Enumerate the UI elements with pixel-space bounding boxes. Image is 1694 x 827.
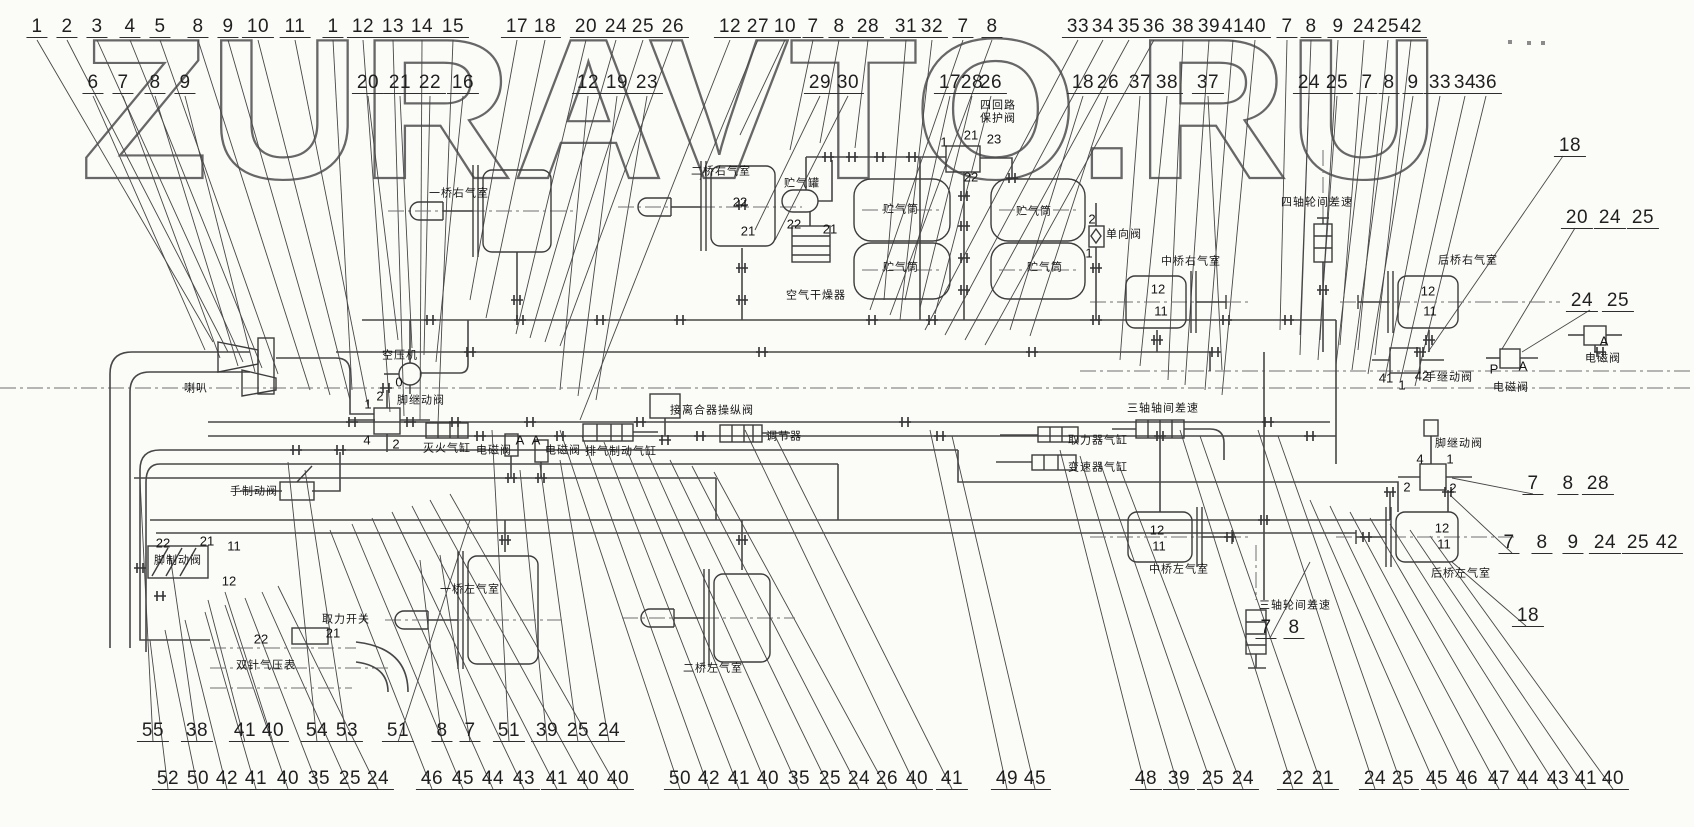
- callout-number-43: 43: [508, 769, 540, 790]
- callout-number-1: 1: [26, 17, 47, 38]
- pipe-fitting: [1282, 315, 1294, 325]
- component-label: 一桥左气室: [440, 584, 500, 597]
- component-label: 空气干燥器: [786, 290, 846, 303]
- callout-number-51: 51: [382, 721, 414, 742]
- callout-number-16: 16: [447, 73, 479, 94]
- callout-number-28: 28: [1582, 474, 1614, 495]
- foot-relay-valve-left: [374, 408, 400, 434]
- callout-number-40: 40: [1597, 769, 1629, 790]
- component-label: 三轴轴间差速: [1127, 403, 1199, 416]
- part-number: 12: [1151, 282, 1165, 297]
- component-label: 四轴轮间差速: [1281, 197, 1353, 210]
- callout-number-48: 48: [1130, 769, 1162, 790]
- callout-number-30: 30: [832, 73, 864, 94]
- part-number: 23: [987, 132, 1001, 147]
- pipe-fitting: [1209, 347, 1221, 357]
- callout-number-25: 25: [1627, 208, 1659, 229]
- part-number: 11: [1152, 539, 1166, 554]
- part-number: 12: [222, 574, 236, 589]
- part-number: 21: [964, 128, 978, 143]
- pipe-fitting: [694, 431, 706, 441]
- callout-number-40: 40: [602, 769, 634, 790]
- part-number: 21: [200, 534, 214, 549]
- callout-number-3: 3: [86, 17, 107, 38]
- part-number: 12: [1435, 521, 1449, 536]
- component-label: 脚继动阀: [1435, 438, 1483, 451]
- part-number: A: [516, 433, 525, 448]
- callout-number-26: 26: [871, 769, 903, 790]
- callout-number-9: 9: [1327, 17, 1348, 38]
- callout-number-25: 25: [627, 17, 659, 38]
- callout-number-46: 46: [1451, 769, 1483, 790]
- callout-number-55: 55: [137, 721, 169, 742]
- callout-number-32: 32: [916, 17, 948, 38]
- component-label: 电磁阀: [476, 445, 512, 458]
- part-number: A: [1519, 359, 1528, 374]
- part-number: 11: [1437, 537, 1451, 552]
- callout-number-54: 54: [301, 721, 333, 742]
- callout-number-41: 41: [541, 769, 573, 790]
- callout-number-41: 41: [240, 769, 272, 790]
- part-number: 11: [1154, 304, 1168, 319]
- part-number: 21: [326, 626, 340, 641]
- callout-number-53: 53: [331, 721, 363, 742]
- component-label: 喇叭: [184, 383, 208, 396]
- part-number: 2: [392, 437, 399, 452]
- callout-number-24: 24: [1589, 533, 1621, 554]
- callout-number-50: 50: [664, 769, 696, 790]
- component-label: 手制动阀: [230, 486, 278, 499]
- component-label: 灭火气缸: [423, 443, 471, 456]
- callout-number-37: 37: [1192, 73, 1224, 94]
- part-number: 2: [1088, 212, 1095, 227]
- callout-number-47: 47: [1483, 769, 1515, 790]
- scan-mark: [1541, 41, 1545, 45]
- callout-number-18: 18: [1554, 136, 1586, 157]
- part-number: 11: [1423, 304, 1437, 319]
- callout-number-8: 8: [828, 17, 849, 38]
- callout-number-12: 12: [347, 17, 379, 38]
- callout-number-36: 36: [1470, 73, 1502, 94]
- callout-number-22: 22: [414, 73, 446, 94]
- component-label: 脚制动阀: [154, 555, 202, 568]
- component-label: 脚继动阀: [397, 395, 445, 408]
- part-number: 4: [1416, 452, 1423, 467]
- callout-number-25: 25: [814, 769, 846, 790]
- callout-number-51: 51: [493, 721, 525, 742]
- brake-system-diagram: ZURAVTO.RU: [0, 0, 1694, 827]
- callout-number-50: 50: [182, 769, 214, 790]
- pipe-fitting: [594, 315, 606, 325]
- callout-number-40: 40: [752, 769, 784, 790]
- callout-number-24: 24: [1566, 291, 1598, 312]
- part-number: A: [532, 433, 541, 448]
- callout-number-41: 41: [936, 769, 968, 790]
- callout-number-26: 26: [657, 17, 689, 38]
- part-number: 11: [227, 539, 241, 554]
- part-number: 22: [156, 536, 170, 551]
- part-number: 2: [1403, 480, 1410, 495]
- callout-number-7: 7: [112, 73, 133, 94]
- callout-number-25: 25: [1622, 533, 1654, 554]
- scan-mark: [1527, 41, 1531, 45]
- callout-number-24: 24: [1594, 208, 1626, 229]
- component-label: 单向阀: [1106, 229, 1142, 242]
- callout-number-45: 45: [1019, 769, 1051, 790]
- pipe-fitting: [474, 431, 486, 441]
- component-label: 变速器气缸: [1068, 462, 1128, 475]
- component-label: 电磁阀: [545, 445, 581, 458]
- callout-number-9: 9: [1562, 533, 1583, 554]
- callout-number-22: 22: [1277, 769, 1309, 790]
- callout-number-36: 36: [1138, 17, 1170, 38]
- scan-mark: [1508, 40, 1512, 44]
- callout-number-14: 14: [406, 17, 438, 38]
- callout-number-8: 8: [187, 17, 208, 38]
- component-label: 电磁阀: [1493, 382, 1529, 395]
- fourth-axle-diff: [1314, 218, 1332, 262]
- pipe-fitting: [554, 431, 566, 441]
- part-number: 4: [363, 433, 370, 448]
- callout-number-40: 40: [1239, 17, 1271, 38]
- callout-number-8: 8: [1283, 618, 1304, 639]
- callout-number-40: 40: [272, 769, 304, 790]
- callout-number-8: 8: [144, 73, 165, 94]
- component-label: 中桥右气室: [1161, 256, 1221, 269]
- callout-number-24: 24: [1227, 769, 1259, 790]
- callout-number-9: 9: [1402, 73, 1423, 94]
- component-label: 贮气筒: [1016, 206, 1052, 219]
- component-label: 接离合器操纵阀: [670, 405, 754, 418]
- callout-number-11: 11: [280, 17, 311, 38]
- callout-number-1: 1: [322, 17, 343, 38]
- callout-number-18: 18: [529, 17, 561, 38]
- component-label: 二桥右气室: [691, 166, 751, 179]
- part-number: 1: [1446, 452, 1453, 467]
- regulator-symbol: [720, 425, 762, 442]
- part-number: 2: [376, 389, 383, 404]
- callout-number-18: 18: [1512, 606, 1544, 627]
- callout-number-42: 42: [211, 769, 243, 790]
- foot-relay-valve-right: [1420, 420, 1446, 490]
- callout-number-42: 42: [1651, 533, 1683, 554]
- callout-number-8: 8: [1300, 17, 1321, 38]
- callout-number-8: 8: [1557, 474, 1578, 495]
- part-number: 1: [364, 397, 371, 412]
- callout-number-10: 10: [769, 17, 801, 38]
- callout-number-4: 4: [119, 17, 140, 38]
- part-number: 1: [1398, 378, 1405, 393]
- callout-number-20: 20: [570, 17, 602, 38]
- callout-number-7: 7: [1498, 533, 1519, 554]
- pipe-fitting: [464, 347, 476, 357]
- pipe-fitting: [634, 417, 646, 427]
- callout-number-35: 35: [303, 769, 335, 790]
- callout-number-23: 23: [631, 73, 663, 94]
- callout-number-20: 20: [352, 73, 384, 94]
- pipe-fitting: [674, 315, 686, 325]
- component-label: 中桥左气室: [1149, 564, 1209, 577]
- callout-number-42: 42: [693, 769, 725, 790]
- component-label: 贮气筒: [883, 204, 919, 217]
- pipe-fitting: [290, 445, 302, 455]
- callout-number-26: 26: [1092, 73, 1124, 94]
- part-number: 22: [964, 170, 978, 185]
- callout-number-45: 45: [447, 769, 479, 790]
- pipe-fitting: [1220, 315, 1232, 325]
- part-number: 41: [1379, 371, 1393, 386]
- piping: [110, 157, 1622, 692]
- component-label: 二桥左气室: [683, 663, 743, 676]
- callout-number-21: 21: [1307, 769, 1339, 790]
- callout-number-9: 9: [174, 73, 195, 94]
- component-label: 手继动阀: [1425, 372, 1473, 385]
- callout-number-40: 40: [572, 769, 604, 790]
- callout-number-8: 8: [1531, 533, 1552, 554]
- part-number: 22: [733, 195, 747, 210]
- pipe-fitting: [346, 417, 358, 427]
- callout-number-26: 26: [975, 73, 1007, 94]
- part-number: 21: [823, 222, 837, 237]
- callout-number-24: 24: [362, 769, 394, 790]
- diagram-art: ZURAVTO.RU: [0, 0, 1694, 827]
- pipe-fitting: [899, 417, 911, 427]
- callout-number-44: 44: [477, 769, 509, 790]
- component-label: 后桥右气室: [1438, 255, 1498, 268]
- callout-number-28: 28: [852, 17, 884, 38]
- callout-number-7: 7: [952, 17, 973, 38]
- callout-number-7: 7: [459, 721, 480, 742]
- callout-number-21: 21: [384, 73, 416, 94]
- callout-number-7: 7: [1255, 618, 1276, 639]
- pipe-fitting: [404, 417, 416, 427]
- callout-number-25: 25: [1387, 769, 1419, 790]
- callout-number-7: 7: [1276, 17, 1297, 38]
- component-label: 贮气筒: [883, 262, 919, 275]
- callout-number-35: 35: [783, 769, 815, 790]
- callout-number-20: 20: [1561, 208, 1593, 229]
- callout-number-45: 45: [1421, 769, 1453, 790]
- callout-number-12: 12: [572, 73, 604, 94]
- brake-chambers: [395, 161, 1458, 669]
- part-number: 42: [1415, 369, 1429, 384]
- callout-number-9: 9: [217, 17, 238, 38]
- callout-number-25: 25: [1197, 769, 1229, 790]
- component-label: 排气制动气缸: [585, 446, 657, 459]
- part-number: 22: [787, 217, 801, 232]
- callout-number-15: 15: [437, 17, 469, 38]
- callout-number-8: 8: [981, 17, 1002, 38]
- callout-number-8: 8: [431, 721, 452, 742]
- part-number: 21: [741, 224, 755, 239]
- callout-number-8: 8: [1378, 73, 1399, 94]
- pipe-fitting: [154, 591, 166, 601]
- callout-number-10: 10: [242, 17, 274, 38]
- check-valve-symbol: [1089, 226, 1104, 247]
- pipe-fitting: [524, 417, 536, 427]
- callout-number-13: 13: [377, 17, 409, 38]
- callout-number-42: 42: [1395, 17, 1427, 38]
- callout-number-44: 44: [1512, 769, 1544, 790]
- part-number: 1: [940, 135, 947, 150]
- component-label: 电磁阀: [1585, 353, 1621, 366]
- exhaust-brake-cylinder: [583, 424, 633, 441]
- callout-number-46: 46: [416, 769, 448, 790]
- part-number: 12: [1421, 284, 1435, 299]
- component-label: 后桥左气室: [1431, 568, 1491, 581]
- horn-symbol: [218, 338, 276, 396]
- part-number: 0: [395, 375, 402, 390]
- component-label: 空压机: [382, 350, 418, 363]
- callout-number-6: 6: [82, 73, 103, 94]
- component-label: 取力开关: [322, 614, 370, 627]
- callout-number-19: 19: [601, 73, 633, 94]
- component-label: 取力器气缸: [1068, 435, 1128, 448]
- solenoid-valve-right: [1500, 349, 1520, 368]
- pipe-fitting: [934, 431, 946, 441]
- callout-number-5: 5: [149, 17, 170, 38]
- part-number: P: [1490, 362, 1499, 377]
- callout-number-40: 40: [257, 721, 289, 742]
- part-number: A: [1600, 334, 1609, 349]
- callout-number-7: 7: [1522, 474, 1543, 495]
- pipe-fitting: [449, 417, 461, 427]
- callout-number-39: 39: [1163, 769, 1195, 790]
- callout-number-25: 25: [1602, 291, 1634, 312]
- callout-number-40: 40: [901, 769, 933, 790]
- component-label: 四回路 保护阀: [980, 99, 1016, 124]
- part-number: 22: [254, 632, 268, 647]
- pipe-fitting: [424, 315, 436, 325]
- pipe-fitting: [756, 347, 768, 357]
- pipe-fitting: [1026, 347, 1038, 357]
- component-label: 调节器: [766, 431, 802, 444]
- callout-number-39: 39: [531, 721, 563, 742]
- pto-switch: [292, 628, 328, 644]
- callout-number-7: 7: [802, 17, 823, 38]
- callout-number-7: 7: [1356, 73, 1377, 94]
- callout-number-38: 38: [181, 721, 213, 742]
- callout-number-24: 24: [593, 721, 625, 742]
- callout-number-25: 25: [1321, 73, 1353, 94]
- pipe-fitting: [866, 315, 878, 325]
- component-label: 贮气罐: [784, 178, 820, 191]
- callout-number-52: 52: [152, 769, 184, 790]
- component-label: 三轴轮间差速: [1259, 600, 1331, 613]
- part-number: 1: [1085, 246, 1092, 261]
- callout-number-38: 38: [1151, 73, 1183, 94]
- centerlines: [0, 150, 1694, 688]
- callout-number-2: 2: [56, 17, 77, 38]
- part-number: 12: [1150, 523, 1164, 538]
- component-label: 贮气筒: [1027, 262, 1063, 275]
- callout-number-41: 41: [723, 769, 755, 790]
- part-number: 2: [1449, 481, 1456, 496]
- component-label: 一桥右气室: [429, 188, 489, 201]
- pipe-fitting: [1304, 431, 1316, 441]
- callout-number-25: 25: [562, 721, 594, 742]
- component-label: 双针气压表: [236, 660, 296, 673]
